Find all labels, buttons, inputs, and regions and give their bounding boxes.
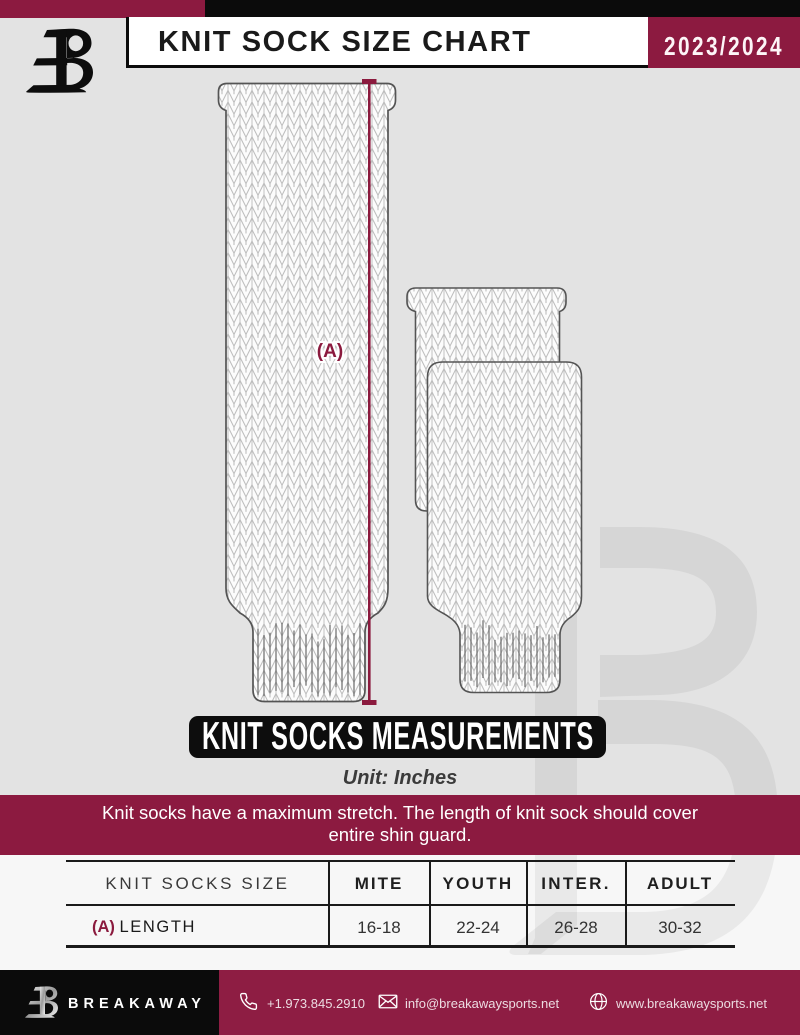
svg-text:(A): (A) [317,341,343,362]
